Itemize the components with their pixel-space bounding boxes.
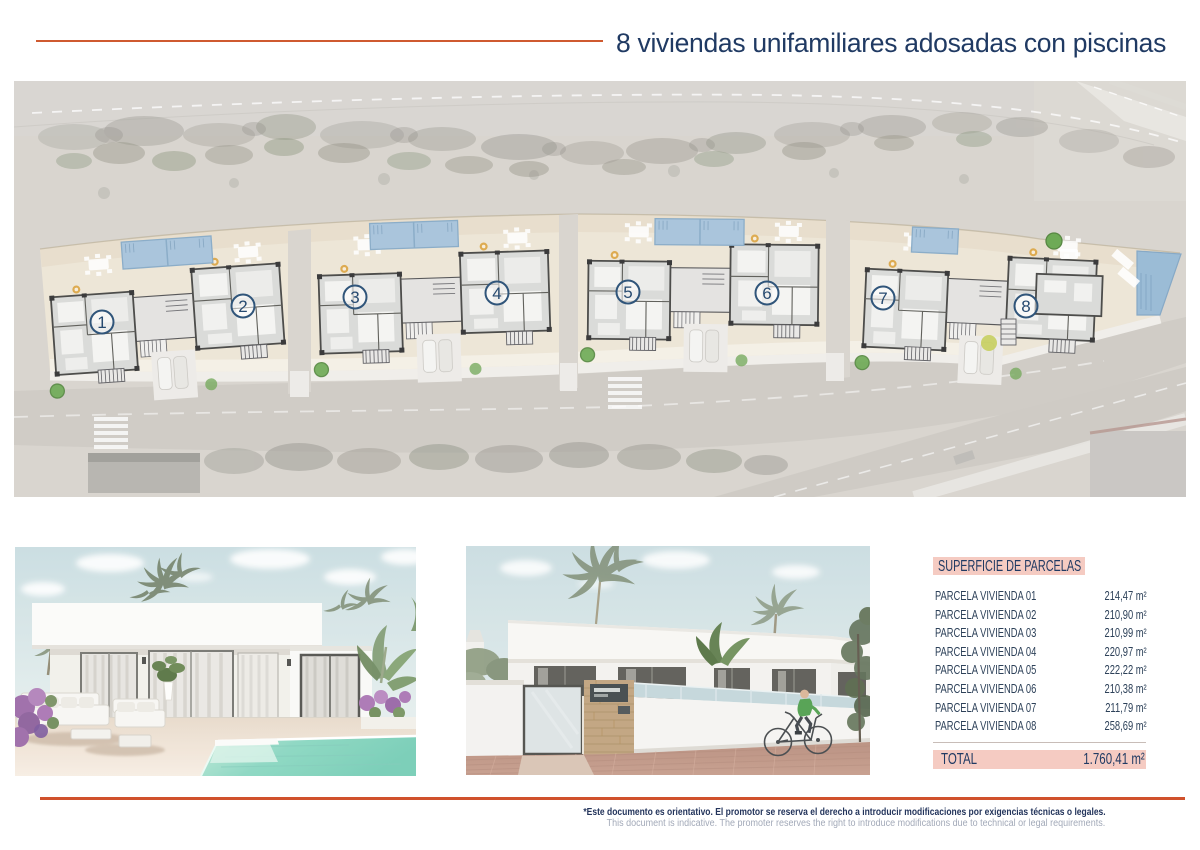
svg-text:3: 3 (350, 288, 359, 307)
svg-text:6: 6 (762, 284, 771, 303)
svg-text:2: 2 (238, 297, 247, 316)
svg-text:4: 4 (492, 284, 501, 303)
svg-text:8: 8 (1021, 297, 1030, 316)
svg-text:5: 5 (623, 283, 632, 302)
svg-text:7: 7 (878, 289, 887, 308)
svg-text:1: 1 (97, 313, 106, 332)
